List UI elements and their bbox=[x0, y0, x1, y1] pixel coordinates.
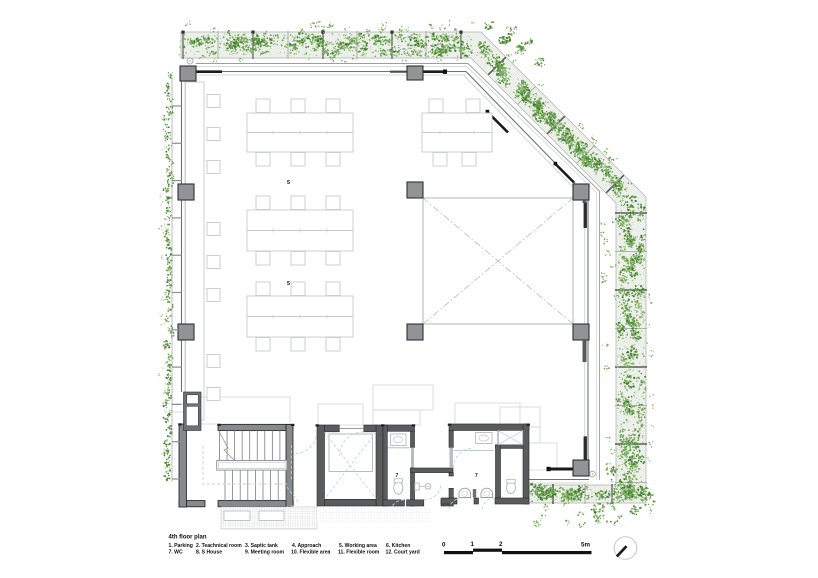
svg-text:7: 7 bbox=[396, 473, 399, 479]
svg-text:7: 7 bbox=[475, 473, 478, 479]
svg-text:5: 5 bbox=[287, 180, 290, 186]
svg-text:5: 5 bbox=[287, 281, 290, 287]
